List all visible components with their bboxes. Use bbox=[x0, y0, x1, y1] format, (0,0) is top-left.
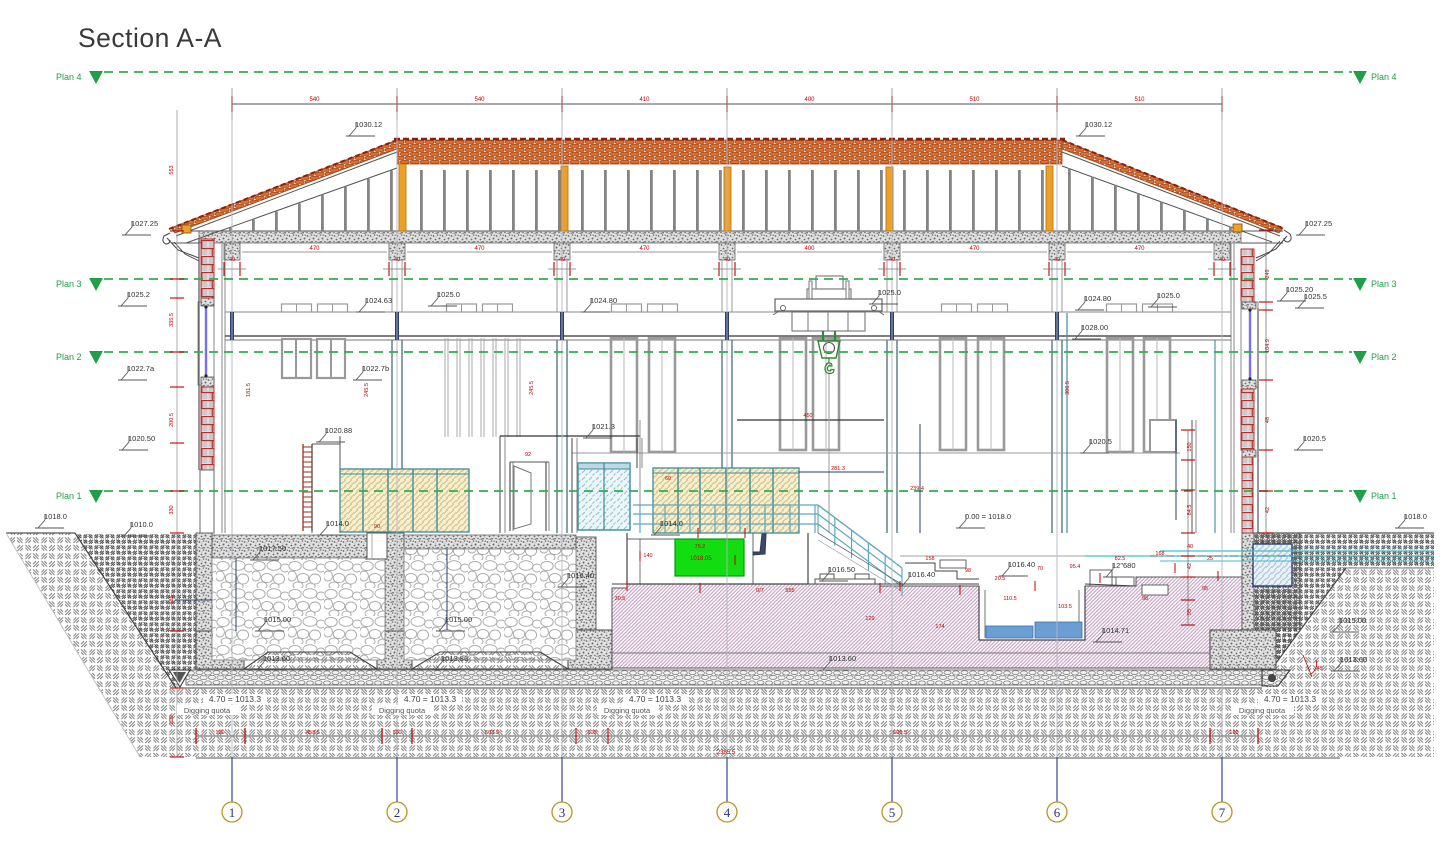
svg-text:168: 168 bbox=[1155, 551, 1164, 557]
svg-text:129: 129 bbox=[865, 616, 874, 622]
svg-text:1022.7b: 1022.7b bbox=[362, 364, 389, 373]
svg-text:470: 470 bbox=[474, 246, 485, 252]
svg-text:400: 400 bbox=[804, 246, 815, 252]
svg-text:450: 450 bbox=[803, 413, 812, 419]
svg-text:1018.0: 1018.0 bbox=[44, 512, 67, 521]
svg-text:60: 60 bbox=[665, 476, 671, 482]
svg-text:335.5: 335.5 bbox=[169, 313, 175, 327]
svg-text:1010.0: 1010.0 bbox=[130, 520, 153, 529]
svg-text:1030.12: 1030.12 bbox=[355, 120, 382, 129]
svg-text:Plan 4: Plan 4 bbox=[1371, 72, 1397, 82]
svg-text:40: 40 bbox=[724, 257, 730, 263]
svg-text:Digging quota: Digging quota bbox=[604, 706, 651, 715]
svg-text:48: 48 bbox=[1265, 417, 1271, 423]
svg-text:40: 40 bbox=[394, 257, 400, 263]
svg-text:1024.63: 1024.63 bbox=[365, 296, 392, 305]
svg-text:510: 510 bbox=[1134, 97, 1145, 103]
svg-text:1025.5: 1025.5 bbox=[1304, 292, 1327, 301]
svg-text:Digging quota: Digging quota bbox=[184, 706, 231, 715]
svg-text:1020.5: 1020.5 bbox=[1089, 437, 1112, 446]
svg-text:3: 3 bbox=[559, 805, 566, 820]
svg-text:2385.5: 2385.5 bbox=[717, 750, 736, 756]
svg-text:1025.0: 1025.0 bbox=[437, 290, 460, 299]
svg-text:306.5: 306.5 bbox=[1065, 381, 1071, 395]
svg-text:470: 470 bbox=[639, 246, 650, 252]
svg-text:40: 40 bbox=[1054, 257, 1060, 263]
svg-text:1: 1 bbox=[229, 805, 236, 820]
svg-text:150: 150 bbox=[1187, 442, 1193, 451]
svg-text:239.4: 239.4 bbox=[910, 486, 924, 492]
svg-text:1027.25: 1027.25 bbox=[131, 219, 158, 228]
svg-text:1014.71: 1014.71 bbox=[1102, 626, 1129, 635]
svg-text:95: 95 bbox=[1187, 609, 1193, 615]
svg-text:Plan 1: Plan 1 bbox=[56, 491, 82, 501]
svg-text:1015.00: 1015.00 bbox=[445, 615, 472, 624]
svg-text:98: 98 bbox=[1142, 596, 1148, 602]
svg-text:160: 160 bbox=[1229, 730, 1238, 736]
svg-text:1014.0: 1014.0 bbox=[326, 519, 349, 528]
svg-text:410: 410 bbox=[639, 97, 650, 103]
svg-text:Plan 1: Plan 1 bbox=[1371, 491, 1397, 501]
svg-text:1016.40: 1016.40 bbox=[908, 570, 935, 579]
svg-text:6: 6 bbox=[1054, 805, 1061, 820]
svg-text:540: 540 bbox=[474, 97, 485, 103]
svg-text:1028.00: 1028.00 bbox=[1081, 323, 1108, 332]
svg-text:40: 40 bbox=[889, 257, 895, 263]
svg-text:1017.50: 1017.50 bbox=[259, 544, 286, 553]
svg-text:Plan 2: Plan 2 bbox=[1371, 352, 1397, 362]
svg-text:95: 95 bbox=[1202, 586, 1208, 592]
svg-text:1022.7a: 1022.7a bbox=[127, 364, 155, 373]
svg-text:1024.80: 1024.80 bbox=[590, 296, 617, 305]
svg-text:470: 470 bbox=[309, 246, 320, 252]
svg-text:7: 7 bbox=[1219, 805, 1226, 820]
svg-text:42: 42 bbox=[1265, 507, 1271, 513]
svg-text:245.5: 245.5 bbox=[529, 381, 535, 395]
svg-text:82.5: 82.5 bbox=[1115, 556, 1126, 562]
svg-text:1020.50: 1020.50 bbox=[128, 434, 155, 443]
svg-text:4: 4 bbox=[724, 805, 731, 820]
svg-text:100: 100 bbox=[169, 715, 175, 724]
svg-text:12″680: 12″680 bbox=[1112, 561, 1136, 570]
svg-text:Plan 3: Plan 3 bbox=[1371, 279, 1397, 289]
svg-text:4.70 = 1013.3: 4.70 = 1013.3 bbox=[404, 694, 457, 704]
svg-text:181.5: 181.5 bbox=[246, 383, 252, 397]
svg-text:605.5: 605.5 bbox=[893, 730, 907, 736]
svg-text:1013.86: 1013.86 bbox=[441, 654, 468, 663]
svg-text:1015.00: 1015.00 bbox=[264, 615, 291, 624]
svg-text:40: 40 bbox=[559, 257, 565, 263]
svg-text:245.5: 245.5 bbox=[364, 383, 370, 397]
svg-text:1025.0: 1025.0 bbox=[1157, 291, 1180, 300]
svg-text:458.5: 458.5 bbox=[306, 730, 320, 736]
svg-text:75.2: 75.2 bbox=[695, 544, 706, 550]
svg-text:104.9: 104.9 bbox=[1265, 339, 1271, 353]
svg-text:330: 330 bbox=[169, 505, 175, 514]
svg-text:1016.40: 1016.40 bbox=[567, 571, 594, 580]
svg-text:603.5: 603.5 bbox=[485, 730, 499, 736]
svg-text:200.5: 200.5 bbox=[169, 413, 175, 427]
svg-text:553: 553 bbox=[169, 165, 175, 174]
svg-text:1025.2: 1025.2 bbox=[127, 290, 150, 299]
svg-text:95.4: 95.4 bbox=[1070, 564, 1081, 570]
svg-text:Plan 2: Plan 2 bbox=[56, 352, 82, 362]
svg-text:1016.40: 1016.40 bbox=[1008, 560, 1035, 569]
svg-text:485: 485 bbox=[169, 595, 175, 604]
svg-text:45: 45 bbox=[1317, 666, 1323, 672]
svg-text:5: 5 bbox=[889, 805, 896, 820]
svg-text:140: 140 bbox=[643, 553, 652, 559]
svg-text:470: 470 bbox=[1134, 246, 1145, 252]
svg-text:Section A-A: Section A-A bbox=[78, 23, 222, 53]
svg-text:249: 249 bbox=[1265, 269, 1271, 278]
svg-text:1021.3: 1021.3 bbox=[592, 422, 615, 431]
svg-text:100: 100 bbox=[587, 730, 596, 736]
svg-text:70: 70 bbox=[1037, 566, 1043, 572]
svg-text:110.5: 110.5 bbox=[1003, 596, 1016, 602]
svg-text:4.70 = 1013.3: 4.70 = 1013.3 bbox=[629, 694, 682, 704]
svg-text:1016.50: 1016.50 bbox=[828, 565, 855, 574]
svg-text:1018.0: 1018.0 bbox=[1404, 512, 1427, 521]
svg-text:90: 90 bbox=[374, 524, 380, 530]
svg-text:1025.0: 1025.0 bbox=[878, 288, 901, 297]
svg-text:103.5: 103.5 bbox=[1058, 604, 1072, 610]
svg-text:25: 25 bbox=[1207, 556, 1213, 562]
svg-text:0.00 = 1018.0: 0.00 = 1018.0 bbox=[965, 512, 1011, 521]
svg-text:555: 555 bbox=[785, 588, 794, 594]
svg-text:1020.88: 1020.88 bbox=[325, 426, 352, 435]
svg-text:92: 92 bbox=[525, 452, 531, 458]
svg-text:100: 100 bbox=[215, 730, 224, 736]
svg-text:510: 510 bbox=[969, 97, 980, 103]
svg-text:1014.0: 1014.0 bbox=[660, 519, 683, 528]
svg-text:84.5: 84.5 bbox=[1187, 505, 1193, 516]
svg-text:30.5: 30.5 bbox=[615, 596, 626, 602]
svg-text:40: 40 bbox=[1219, 257, 1225, 263]
svg-text:1020.5: 1020.5 bbox=[1303, 434, 1326, 443]
svg-text:158: 158 bbox=[925, 556, 934, 562]
svg-text:40: 40 bbox=[1187, 544, 1193, 550]
svg-text:281.3: 281.3 bbox=[831, 466, 845, 472]
svg-text:1013.60: 1013.60 bbox=[263, 654, 290, 663]
svg-text:20.5: 20.5 bbox=[995, 576, 1006, 582]
svg-text:1013.60: 1013.60 bbox=[1340, 655, 1367, 664]
svg-text:40: 40 bbox=[229, 257, 235, 263]
svg-text:Digging quota: Digging quota bbox=[1239, 706, 1286, 715]
svg-text:4.70 = 1013.3: 4.70 = 1013.3 bbox=[209, 694, 262, 704]
svg-text:1030.12: 1030.12 bbox=[1085, 120, 1112, 129]
svg-text:Plan 4: Plan 4 bbox=[56, 72, 82, 82]
svg-text:540: 540 bbox=[309, 97, 320, 103]
svg-text:470: 470 bbox=[969, 246, 980, 252]
svg-text:4.70 = 1013.3: 4.70 = 1013.3 bbox=[1264, 694, 1317, 704]
svg-text:174: 174 bbox=[935, 624, 944, 630]
svg-text:42: 42 bbox=[1187, 563, 1193, 569]
svg-text:98: 98 bbox=[965, 568, 971, 574]
svg-text:1018.05: 1018.05 bbox=[690, 556, 712, 562]
svg-text:Digging quota: Digging quota bbox=[379, 706, 426, 715]
svg-text:1015.00: 1015.00 bbox=[1339, 616, 1366, 625]
svg-text:100: 100 bbox=[392, 730, 401, 736]
svg-text:1027.25: 1027.25 bbox=[1305, 219, 1332, 228]
svg-text:400: 400 bbox=[804, 97, 815, 103]
svg-text:0/7: 0/7 bbox=[756, 588, 764, 594]
svg-text:2: 2 bbox=[394, 805, 401, 820]
svg-text:1013.60: 1013.60 bbox=[829, 654, 856, 663]
svg-text:Plan 3: Plan 3 bbox=[56, 279, 82, 289]
svg-text:1024.80: 1024.80 bbox=[1084, 294, 1111, 303]
